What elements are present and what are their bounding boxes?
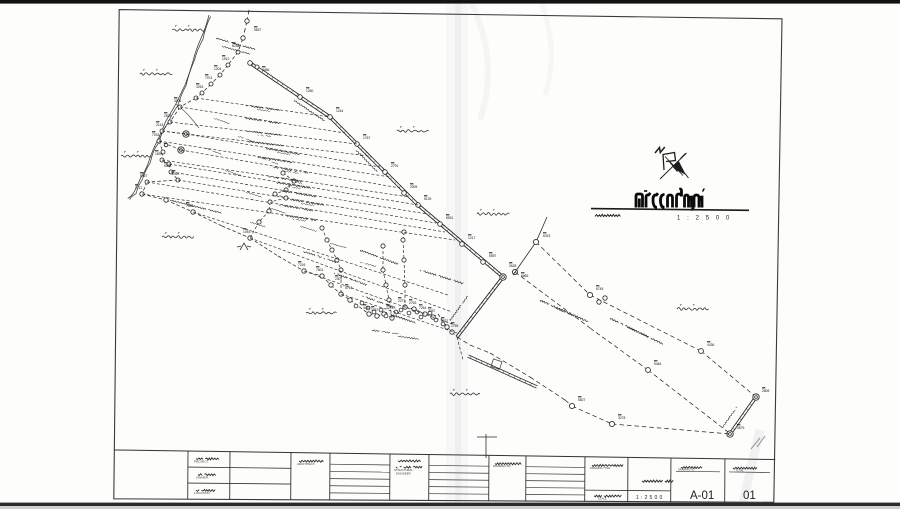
svg-text:1837: 1837 <box>441 319 449 323</box>
svg-text:1260: 1260 <box>306 89 314 93</box>
svg-text:2628: 2628 <box>509 264 517 268</box>
svg-text:1839: 1839 <box>155 152 163 156</box>
svg-text:4456: 4456 <box>262 68 270 72</box>
svg-text:1:2500: 1:2500 <box>677 216 736 222</box>
svg-text:2828: 2828 <box>164 114 172 118</box>
svg-text:5931: 5931 <box>446 216 454 220</box>
svg-text:5597: 5597 <box>489 254 497 258</box>
svg-text:PROJECT.: PROJECT. <box>194 459 209 463</box>
svg-text:7216: 7216 <box>298 263 306 267</box>
svg-text:2307: 2307 <box>335 277 343 281</box>
svg-text:7630: 7630 <box>186 204 194 208</box>
svg-text:4462: 4462 <box>363 306 371 310</box>
svg-text:1244: 1244 <box>336 109 344 113</box>
svg-text:1204: 1204 <box>214 67 222 71</box>
svg-text:2791: 2791 <box>391 164 399 168</box>
svg-text:5837: 5837 <box>254 28 262 32</box>
svg-text:3276: 3276 <box>386 306 394 310</box>
svg-text:LOCATION.: LOCATION. <box>194 491 211 495</box>
svg-text:3006: 3006 <box>174 99 182 103</box>
svg-text:A-01: A-01 <box>690 490 714 502</box>
svg-text:1712: 1712 <box>135 186 143 190</box>
svg-text:5467: 5467 <box>140 174 148 178</box>
svg-text:1759: 1759 <box>451 324 459 328</box>
svg-text:3757: 3757 <box>428 309 436 313</box>
svg-text:1912: 1912 <box>222 57 230 61</box>
svg-text:DRAWING NO.: DRAWING NO. <box>678 469 695 472</box>
svg-text:1217: 1217 <box>468 236 476 240</box>
svg-text:1767: 1767 <box>363 136 371 140</box>
svg-text:6323: 6323 <box>543 234 551 238</box>
svg-text:OWNER.: OWNER. <box>196 475 209 479</box>
svg-text:6719: 6719 <box>345 286 353 290</box>
svg-text:6543: 6543 <box>164 164 172 168</box>
svg-text:6745: 6745 <box>596 287 604 291</box>
svg-text:7601: 7601 <box>316 268 324 272</box>
svg-text:5827: 5827 <box>578 398 586 402</box>
svg-text:7074: 7074 <box>205 76 213 80</box>
svg-text:7067: 7067 <box>172 172 180 176</box>
svg-text:4679: 4679 <box>737 426 745 430</box>
svg-text:TOTAL.: TOTAL. <box>736 469 745 472</box>
svg-text:ARCHITECT.: ARCHITECT. <box>297 462 315 466</box>
svg-text:2273: 2273 <box>398 299 406 303</box>
svg-text:SCALE: SCALE <box>598 496 607 500</box>
svg-text:1:2500: 1:2500 <box>636 495 665 501</box>
svg-text:2143: 2143 <box>156 123 164 127</box>
svg-text:5139: 5139 <box>424 197 432 201</box>
svg-text:1053: 1053 <box>243 230 251 234</box>
svg-text:DRAWING BY.: DRAWING BY. <box>493 464 512 468</box>
svg-text:3253: 3253 <box>196 85 204 89</box>
svg-text:2905: 2905 <box>410 185 418 189</box>
svg-text:3787: 3787 <box>371 308 379 312</box>
svg-text:5464: 5464 <box>654 362 662 366</box>
svg-text:2763: 2763 <box>409 301 417 305</box>
svg-text:01: 01 <box>743 490 756 502</box>
svg-text:3278: 3278 <box>618 416 626 420</box>
svg-text:2805: 2805 <box>762 389 770 393</box>
svg-text:DRAWING TITLE.: DRAWING TITLE. <box>590 466 611 470</box>
svg-text:7254: 7254 <box>419 306 427 310</box>
svg-text:ENGINEER.: ENGINEER. <box>396 472 412 476</box>
svg-text:7033: 7033 <box>152 133 160 137</box>
svg-text:4436: 4436 <box>707 343 715 347</box>
